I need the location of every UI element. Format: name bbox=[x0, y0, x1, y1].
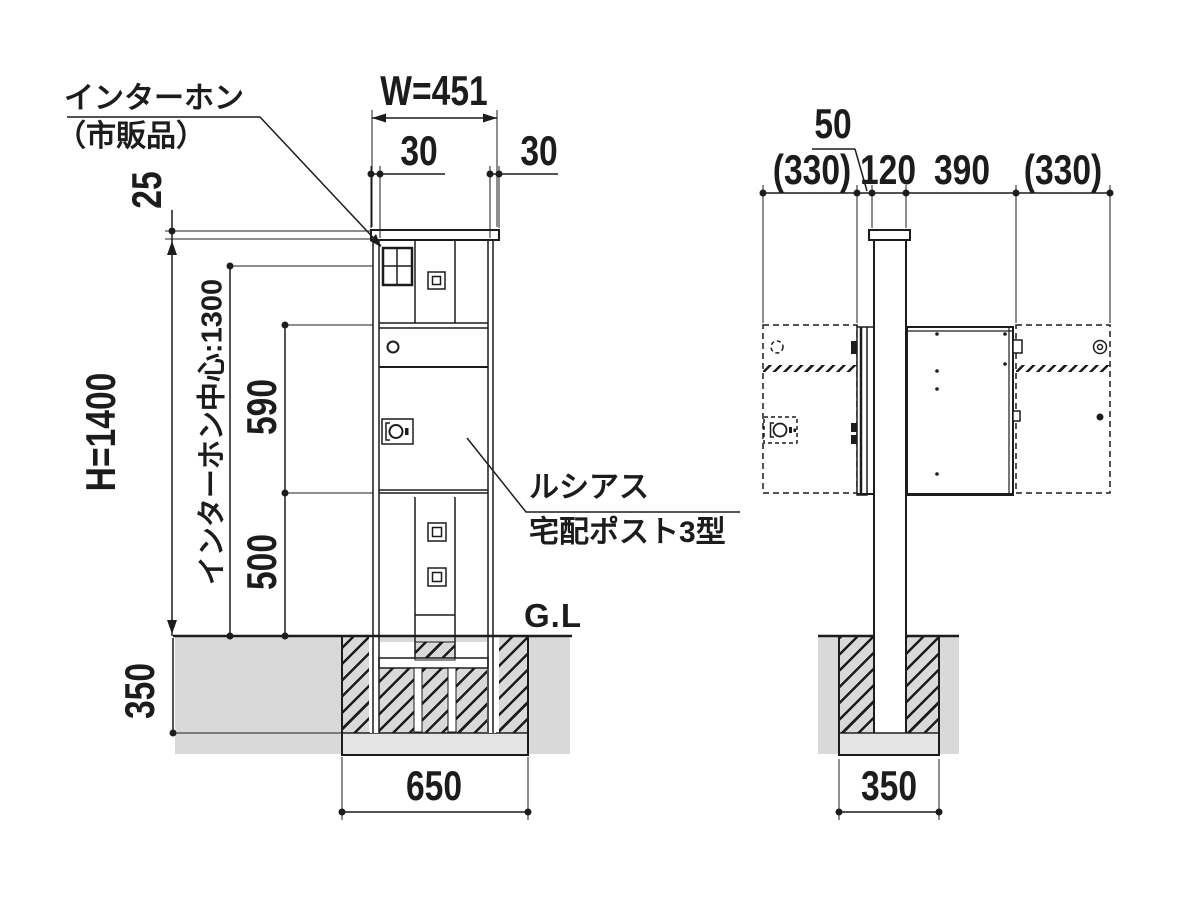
intercom-label-line1: インターホン bbox=[64, 84, 244, 114]
dim-lower-door: 500 bbox=[241, 534, 283, 590]
swing-knob-inner bbox=[1098, 345, 1103, 350]
leader-lines bbox=[67, 117, 867, 512]
dim-pole-depth: 120 bbox=[860, 149, 916, 191]
swing-keyhole bbox=[771, 341, 783, 353]
intercom-window bbox=[383, 248, 412, 285]
product-label-line1: ルシアス bbox=[529, 473, 649, 503]
back-hinge-mid bbox=[1013, 411, 1020, 421]
side-pole bbox=[869, 230, 910, 733]
product-label-line2: 宅配ポスト3型 bbox=[529, 518, 726, 548]
dim-embed-depth: 350 bbox=[119, 663, 161, 719]
door-swing-left bbox=[763, 325, 857, 493]
dimension-drawing: インターホン （市販品） W=451 30 30 25 H=1400 インターホ… bbox=[0, 0, 1200, 900]
dim-upper-door: 590 bbox=[241, 379, 283, 435]
front-lock-unit bbox=[382, 419, 413, 444]
front-foundation-outline bbox=[342, 636, 528, 755]
front-hinge-mid2 bbox=[851, 435, 857, 444]
side-pole-cap bbox=[869, 230, 910, 240]
swing-knob-outer bbox=[1094, 341, 1107, 354]
dim-intercom-center: インターホン中心:1300 bbox=[199, 279, 228, 585]
swing-latch-dot bbox=[1097, 414, 1104, 421]
dim-cap-offset: 25 bbox=[126, 171, 168, 208]
dim-foundation-width-front: 650 bbox=[406, 765, 462, 807]
back-hinge-top bbox=[1013, 340, 1022, 353]
side-unit bbox=[763, 325, 1110, 495]
dim-inset-right: 30 bbox=[520, 130, 557, 172]
side-body bbox=[907, 327, 1013, 495]
front-unit bbox=[370, 230, 499, 733]
front-hinge-mid1 bbox=[851, 423, 857, 432]
dim-door-swing-left: (330) bbox=[773, 149, 851, 191]
intercom-label-line2: （市販品） bbox=[56, 122, 206, 152]
dim-front-gap: 50 bbox=[814, 103, 851, 145]
front-hinge-top bbox=[851, 341, 857, 354]
dim-height-total: H=1400 bbox=[80, 373, 122, 492]
front-keyhole bbox=[388, 342, 399, 353]
dim-inset-left: 30 bbox=[400, 130, 437, 172]
dim-foundation-width-side: 350 bbox=[861, 765, 917, 807]
name-plate-square bbox=[428, 272, 445, 289]
side-dimensions bbox=[760, 185, 1114, 820]
dim-body-depth: 390 bbox=[934, 149, 990, 191]
swing-lock-unit bbox=[764, 417, 797, 443]
front-cap bbox=[371, 230, 499, 240]
dim-door-swing-right: (330) bbox=[1024, 149, 1102, 191]
door-swing-right bbox=[1016, 325, 1110, 493]
lower-door-squares bbox=[428, 523, 446, 586]
dim-width-total: W=451 bbox=[380, 70, 487, 112]
ground-level-label: G.L bbox=[524, 599, 582, 632]
